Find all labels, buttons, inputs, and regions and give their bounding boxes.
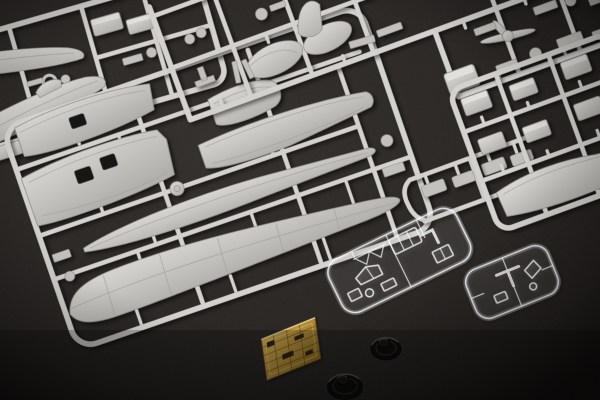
bottom-shade	[0, 330, 600, 400]
model-kit-photo	[0, 0, 600, 400]
photo-stage	[0, 0, 600, 400]
